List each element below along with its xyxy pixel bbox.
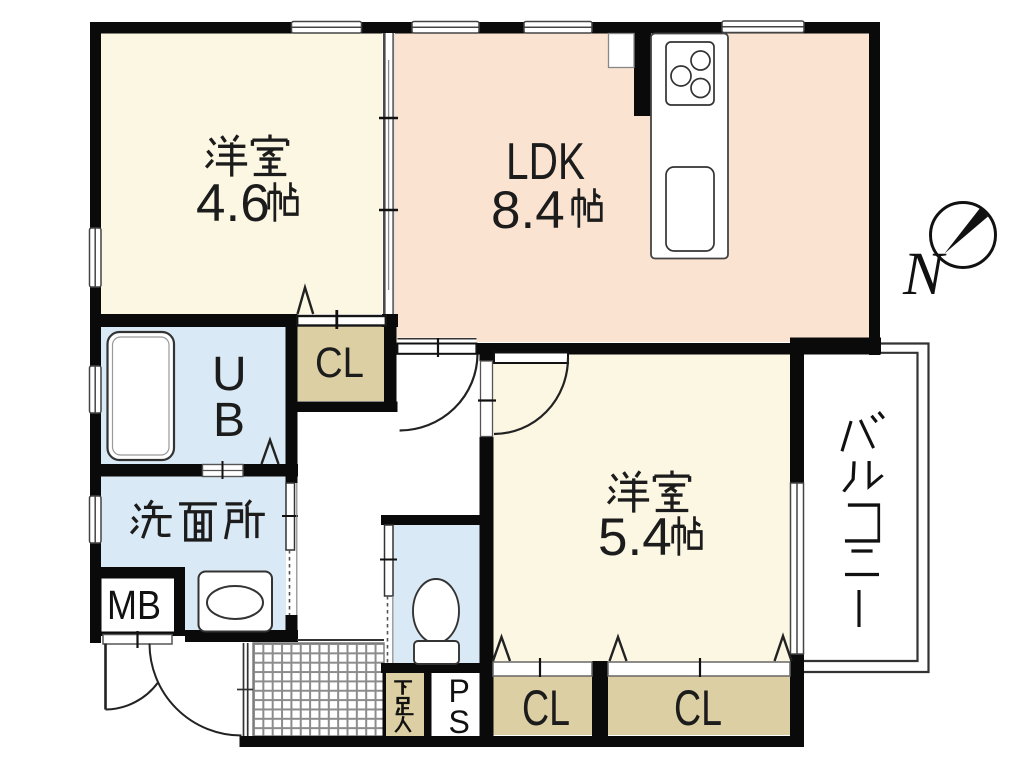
- svg-text:CL: CL: [674, 680, 722, 736]
- svg-text:B: B: [213, 394, 245, 447]
- svg-text:CL: CL: [315, 339, 364, 387]
- svg-text:4.6: 4.6: [196, 174, 270, 233]
- svg-text:MB: MB: [107, 582, 161, 628]
- svg-text:CL: CL: [522, 680, 570, 736]
- svg-text:5.4: 5.4: [598, 508, 672, 567]
- svg-text:8.4: 8.4: [491, 181, 565, 240]
- svg-text:N: N: [902, 241, 947, 308]
- svg-text:S: S: [449, 704, 470, 740]
